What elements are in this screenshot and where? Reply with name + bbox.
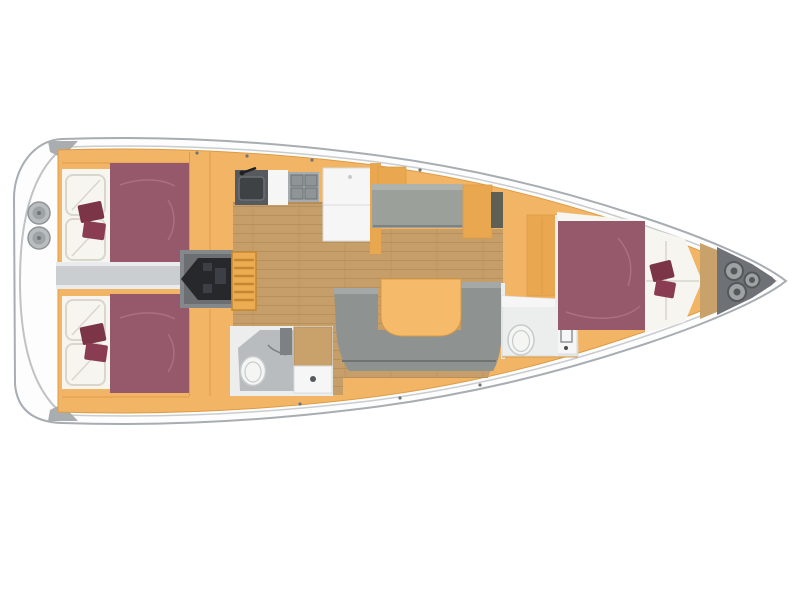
deck-fitting-dot <box>418 168 421 171</box>
corridor-edge <box>56 285 182 289</box>
counter-knob <box>348 175 352 179</box>
deck-hatch-dot <box>37 236 41 240</box>
burner <box>305 175 317 186</box>
engine-detail <box>203 263 212 271</box>
floorplan-stage <box>0 0 800 600</box>
accent-cushion <box>84 343 108 363</box>
bulkhead <box>555 215 558 356</box>
shower-column <box>280 328 292 355</box>
sink-bowl <box>239 177 264 200</box>
salon <box>334 279 502 371</box>
rope-coil-center <box>734 289 741 296</box>
bench-cushion <box>372 184 463 228</box>
toilet <box>508 325 534 355</box>
nav-locker <box>491 192 503 228</box>
deck-hatch-dot <box>37 211 41 215</box>
rope-coil-center <box>731 268 738 275</box>
vanity-faucet <box>310 376 316 382</box>
toilet <box>241 357 266 386</box>
bow-wood-strip <box>700 243 717 319</box>
top-locker <box>378 167 406 186</box>
double-bed <box>110 294 189 393</box>
yacht-floorplan-svg <box>0 0 800 600</box>
corridor-edge <box>56 262 182 266</box>
engine-compartment <box>180 250 233 308</box>
salon-table <box>381 279 461 336</box>
double-bed <box>110 163 189 262</box>
aft-head <box>230 326 333 396</box>
corridor-floor <box>56 266 182 285</box>
deck-fitting-dot <box>310 158 313 161</box>
deck-fitting-dot <box>398 396 401 399</box>
companionway-stairs <box>232 252 256 310</box>
burner <box>305 188 317 199</box>
deck-fitting-dot <box>245 154 248 157</box>
rope-coil-center <box>749 277 755 283</box>
engine-detail <box>203 284 212 293</box>
deck-fitting-dot <box>478 383 481 386</box>
aft-cabin-port <box>62 163 189 262</box>
deck-fitting-dot <box>298 402 301 405</box>
sofa-armrest <box>461 282 502 288</box>
head-door-wood <box>294 327 332 366</box>
counter-white <box>268 170 288 205</box>
accent-cushion <box>654 279 676 298</box>
burner <box>291 175 303 186</box>
deck-fitting-dot <box>195 151 198 154</box>
stern-corridor <box>56 262 182 289</box>
aft-cabin-starboard <box>62 294 189 397</box>
engine-detail <box>215 268 226 284</box>
sofa-armrest <box>334 288 378 294</box>
burner <box>291 188 303 199</box>
accent-cushion <box>82 221 106 241</box>
panel-button <box>564 346 568 350</box>
bench-backrest <box>372 184 463 190</box>
cabinet <box>463 185 492 238</box>
